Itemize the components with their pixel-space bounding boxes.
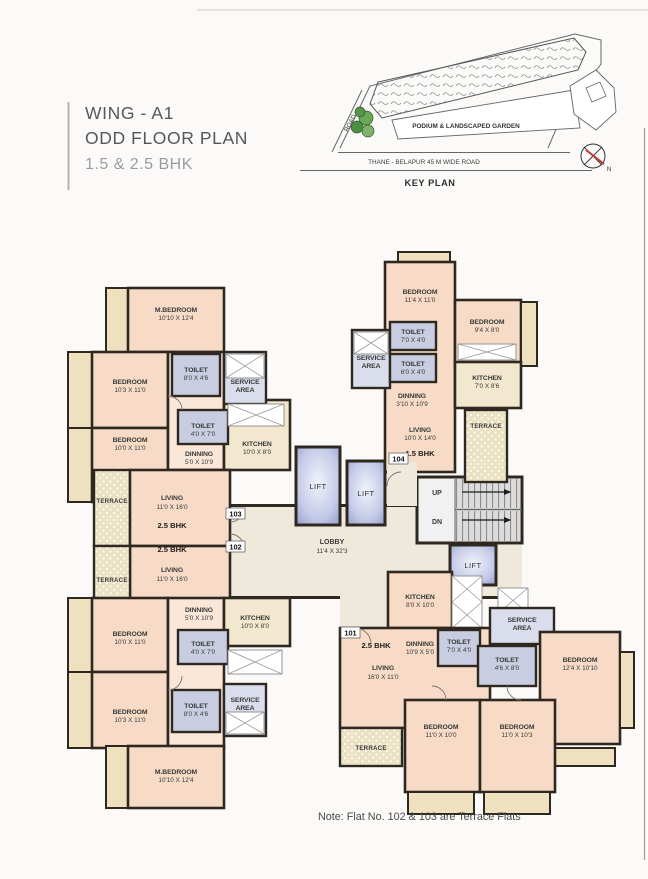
svg-text:4'0 X 7'0: 4'0 X 7'0 (191, 431, 216, 438)
svg-text:TOILET: TOILET (191, 641, 215, 648)
svg-text:10'0 X 11'0: 10'0 X 11'0 (114, 445, 146, 452)
svg-text:BEDROOM: BEDROOM (403, 289, 438, 296)
svg-text:TERRACE: TERRACE (470, 423, 501, 430)
room-niche (620, 652, 634, 728)
svg-text:AREA: AREA (236, 705, 255, 712)
svg-text:LIFT: LIFT (309, 482, 326, 491)
header-block: WING - A1 ODD FLOOR PLAN 1.5 & 2.5 BHK (69, 102, 249, 190)
svg-text:10'3 X 11'0: 10'3 X 11'0 (114, 717, 146, 724)
svg-text:10'0 X 8'0: 10'0 X 8'0 (241, 623, 269, 630)
svg-text:BEDROOM: BEDROOM (113, 631, 148, 638)
room-kitchen (224, 598, 290, 646)
flat-no-104: 104 (392, 455, 405, 464)
svg-text:LIVING: LIVING (372, 665, 394, 672)
flat-no-102: 102 (229, 543, 241, 552)
svg-text:KITCHEN: KITCHEN (240, 615, 270, 622)
svg-text:TOILET: TOILET (401, 361, 425, 368)
north-compass-icon (581, 144, 605, 168)
svg-text:SERVICE: SERVICE (507, 617, 537, 624)
svg-text:LIVING: LIVING (409, 427, 431, 434)
room-niche (68, 672, 92, 748)
floor-plan-sheet: WING - A1 ODD FLOOR PLAN 1.5 & 2.5 BHK P… (0, 0, 648, 879)
key-plan: PODIUM & LANDSCAPED GARDEN THANE - BELAP… (300, 34, 616, 188)
room-terrace (465, 410, 507, 482)
svg-text:2.5 BHK: 2.5 BHK (157, 521, 187, 530)
svg-text:5'0 X 10'9: 5'0 X 10'9 (185, 615, 213, 622)
svg-text:TOILET: TOILET (184, 367, 208, 374)
svg-text:SERVICE: SERVICE (356, 355, 386, 362)
svg-text:KITCHEN: KITCHEN (405, 594, 435, 601)
room-niche (68, 598, 92, 672)
svg-text:M.BEDROOM: M.BEDROOM (155, 307, 198, 314)
plan-title: ODD FLOOR PLAN (85, 128, 248, 148)
svg-text:5'0 X 10'9: 5'0 X 10'9 (185, 459, 213, 466)
svg-text:16'0 X 11'0: 16'0 X 11'0 (367, 674, 399, 681)
svg-text:10'0 X 11'0: 10'0 X 11'0 (114, 639, 146, 646)
room-niche (521, 302, 537, 366)
room-niche (106, 288, 128, 352)
duct (452, 576, 482, 628)
entry-corridor (387, 462, 417, 506)
svg-text:BEDROOM: BEDROOM (500, 724, 535, 731)
svg-text:4'6 X 8'0: 4'6 X 8'0 (495, 665, 520, 672)
svg-text:AREA: AREA (513, 625, 532, 632)
flat-no-101: 101 (344, 629, 356, 638)
north-label: N (607, 166, 612, 173)
room-terrace (94, 470, 130, 546)
svg-text:10'3 X 11'0: 10'3 X 11'0 (114, 387, 146, 394)
svg-text:AREA: AREA (236, 387, 255, 394)
svg-text:2.5 BHK: 2.5 BHK (157, 545, 187, 554)
svg-text:DN: DN (432, 519, 442, 526)
svg-text:LIFT: LIFT (464, 561, 481, 570)
svg-text:11'0 X 16'0: 11'0 X 16'0 (156, 576, 188, 583)
room-niche (106, 746, 128, 808)
room-bedroom (480, 700, 555, 792)
svg-text:10'0 X 8'0: 10'0 X 8'0 (243, 449, 271, 456)
terrace-flats-note: Note: Flat No. 102 & 103 are Terrace Fla… (318, 811, 521, 823)
svg-text:DINNING: DINNING (398, 393, 426, 400)
svg-text:UP: UP (432, 490, 442, 497)
svg-text:TOILET: TOILET (401, 329, 425, 336)
bhk-subtitle: 1.5 & 2.5 BHK (85, 156, 193, 173)
svg-text:DINNING: DINNING (185, 451, 213, 458)
svg-text:AREA: AREA (362, 363, 381, 370)
svg-text:6'0 X 4'0: 6'0 X 4'0 (401, 369, 426, 376)
svg-text:LIFT: LIFT (357, 489, 374, 498)
floor-plan-svg: WING - A1 ODD FLOOR PLAN 1.5 & 2.5 BHK P… (0, 0, 648, 879)
room-niche (68, 352, 92, 428)
room-toilet (390, 354, 436, 382)
svg-text:11'4 X 11'0: 11'4 X 11'0 (405, 297, 436, 304)
svg-text:TOILET: TOILET (495, 657, 519, 664)
key-plan-title: KEY PLAN (404, 178, 455, 188)
svg-text:LIVING: LIVING (161, 567, 183, 574)
svg-text:DINNING: DINNING (185, 607, 213, 614)
svg-text:11'0 X 10'0: 11'0 X 10'0 (425, 732, 457, 739)
svg-text:2.5 BHK: 2.5 BHK (361, 641, 391, 650)
svg-text:DINNING: DINNING (406, 641, 434, 648)
svg-text:10'10 X 12'4: 10'10 X 12'4 (158, 777, 194, 784)
svg-text:TERRACE: TERRACE (96, 577, 127, 584)
svg-text:BEDROOM: BEDROOM (113, 379, 148, 386)
svg-text:BEDROOM: BEDROOM (470, 319, 505, 326)
svg-text:11'0 X 16'0: 11'0 X 16'0 (156, 504, 188, 511)
road-label: THANE - BELAPUR 45 M WIDE ROAD (368, 159, 480, 166)
svg-text:SERVICE: SERVICE (230, 379, 260, 386)
svg-text:BEDROOM: BEDROOM (563, 657, 598, 664)
svg-text:1.5 BHK: 1.5 BHK (405, 449, 435, 458)
svg-text:3'10 X 10'9: 3'10 X 10'9 (396, 401, 428, 408)
room-niche (68, 428, 92, 502)
svg-text:9'4 X 8'0: 9'4 X 8'0 (475, 327, 500, 334)
svg-text:8'0 X 10'0: 8'0 X 10'0 (406, 602, 434, 609)
svg-text:LIVING: LIVING (161, 495, 183, 502)
wing-title: WING - A1 (85, 103, 174, 123)
svg-text:KITCHEN: KITCHEN (472, 375, 502, 382)
svg-text:7'0 X 4'0: 7'0 X 4'0 (401, 337, 426, 344)
svg-text:M.BEDROOM: M.BEDROOM (155, 769, 198, 776)
svg-text:11'4 X 32'3: 11'4 X 32'3 (316, 548, 348, 555)
svg-text:TOILET: TOILET (447, 639, 471, 646)
svg-text:BEDROOM: BEDROOM (424, 724, 459, 731)
svg-text:8'0 X 4'6: 8'0 X 4'6 (184, 375, 209, 382)
svg-text:TERRACE: TERRACE (355, 745, 386, 752)
svg-text:TERRACE: TERRACE (96, 498, 127, 505)
svg-text:10'0 X 14'0: 10'0 X 14'0 (404, 435, 436, 442)
podium-label: PODIUM & LANDSCAPED GARDEN (412, 123, 520, 130)
room-niche (398, 252, 450, 262)
svg-text:BEDROOM: BEDROOM (113, 437, 148, 444)
svg-text:LOBBY: LOBBY (320, 539, 345, 546)
svg-text:7'0 X 8'6: 7'0 X 8'6 (475, 383, 500, 390)
svg-text:10'10 X 12'4: 10'10 X 12'4 (158, 315, 194, 322)
staircase (417, 477, 522, 543)
room-toilet (390, 322, 436, 350)
svg-text:SERVICE: SERVICE (230, 697, 260, 704)
flat-no-103: 103 (229, 510, 241, 519)
svg-text:12'4 X 10'10: 12'4 X 10'10 (562, 665, 598, 672)
svg-text:KITCHEN: KITCHEN (242, 441, 272, 448)
svg-text:4'0 X 7'0: 4'0 X 7'0 (191, 649, 216, 656)
svg-text:TOILET: TOILET (184, 703, 208, 710)
svg-text:8'0 X 4'6: 8'0 X 4'6 (184, 711, 209, 718)
svg-text:7'0 X 4'0: 7'0 X 4'0 (447, 647, 472, 654)
room-bedroom (405, 700, 480, 792)
svg-text:11'0 X 10'3: 11'0 X 10'3 (501, 732, 533, 739)
svg-text:TOILET: TOILET (191, 423, 215, 430)
svg-text:BEDROOM: BEDROOM (113, 709, 148, 716)
svg-text:10'9 X 5'0: 10'9 X 5'0 (406, 649, 434, 656)
